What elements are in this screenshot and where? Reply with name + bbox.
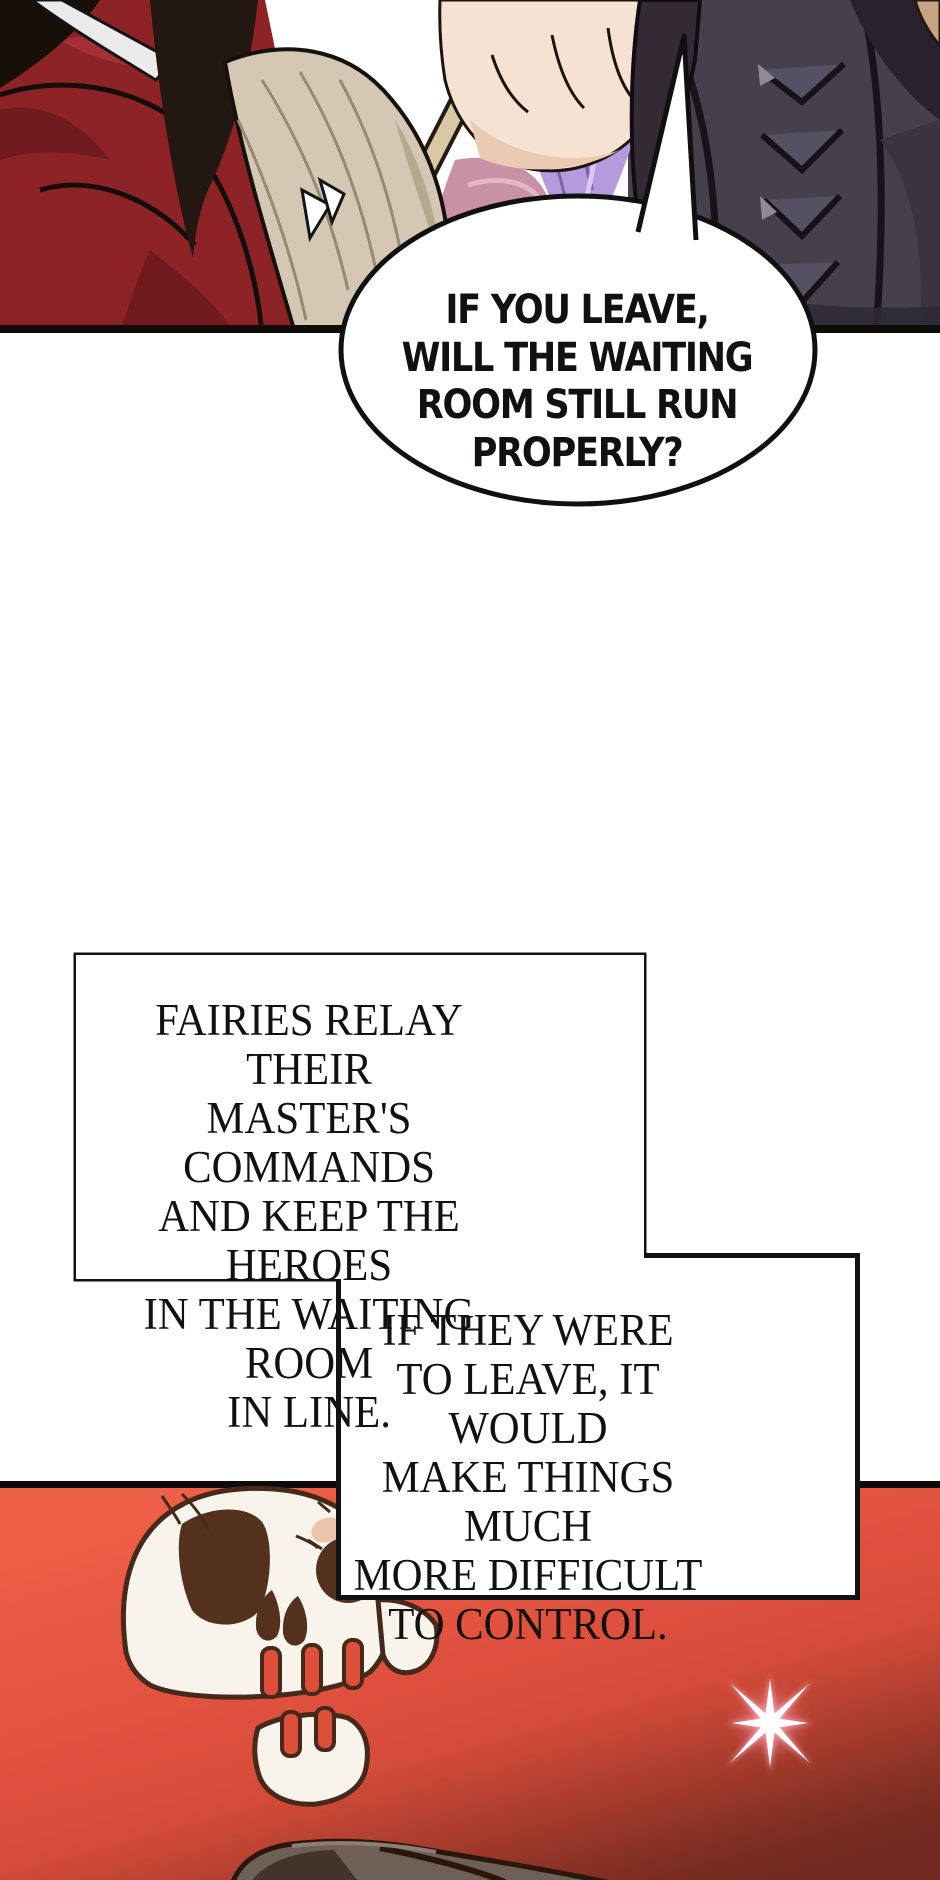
skull-chin-piece bbox=[255, 1714, 368, 1804]
left-eye-socket bbox=[179, 1509, 270, 1624]
speech-bubble-text: IF YOU LEAVE, WILL THE WAITING ROOM STIL… bbox=[379, 287, 775, 477]
caption-box-2-text: IF THEY WERE TO LEAVE, IT WOULD MAKE THI… bbox=[324, 1306, 733, 1649]
webtoon-page: IF YOU LEAVE, WILL THE WAITING ROOM STIL… bbox=[0, 0, 940, 1880]
